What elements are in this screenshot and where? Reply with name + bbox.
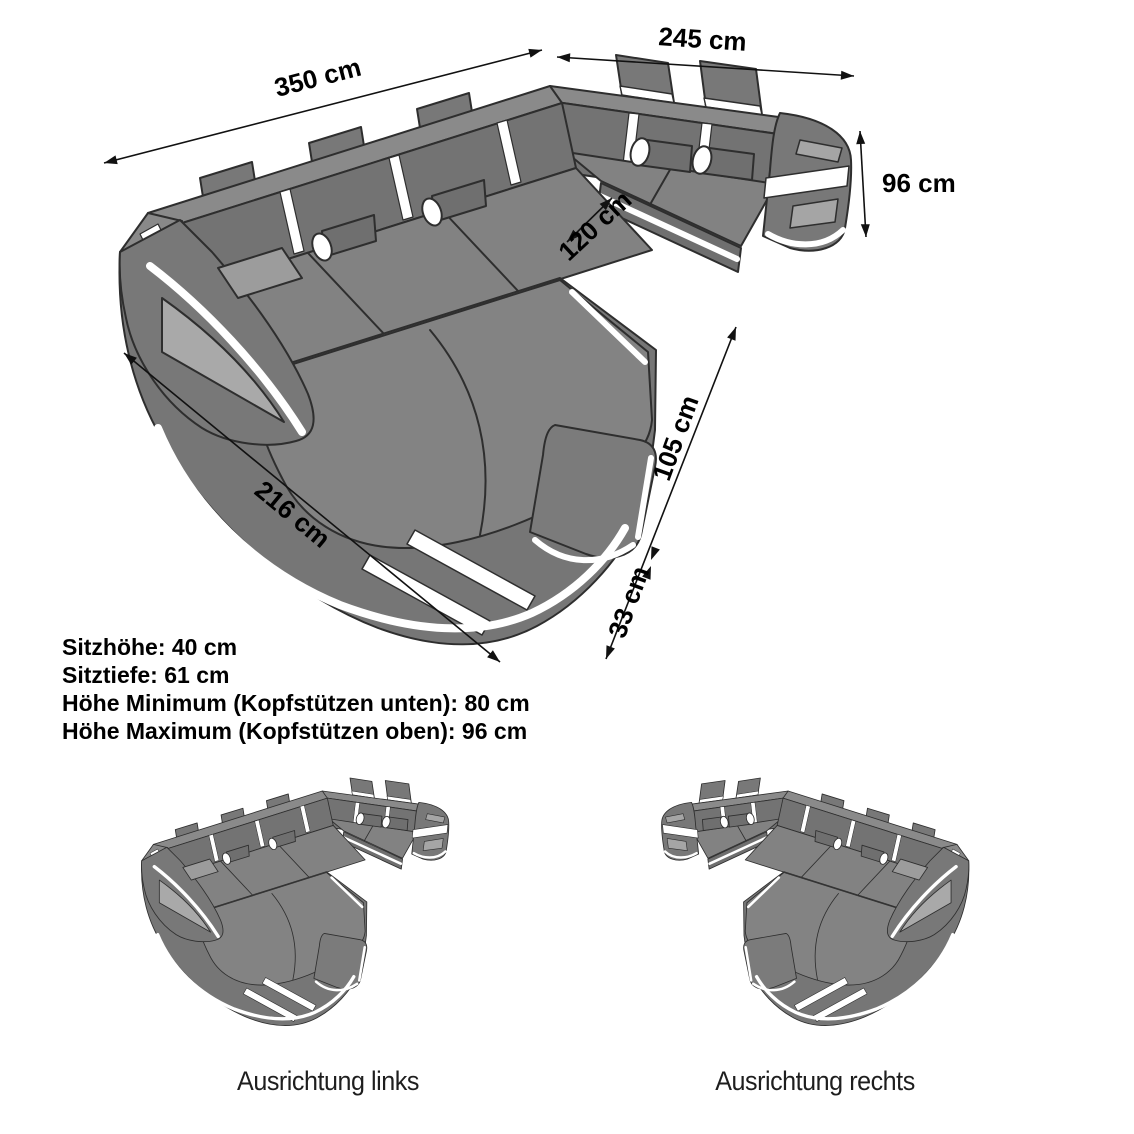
spec-seat-depth: Sitztiefe: 61 cm [62, 661, 530, 689]
orientation-label-rechts: Ausrichtung rechts [657, 1066, 973, 1097]
dim-label-height: 96 cm [882, 168, 956, 198]
diagram-canvas: 350 cm 245 cm 96 cm 120 cm 105 cm [0, 0, 1134, 1134]
spec-height-max: Höhe Maximum (Kopfstützen oben): 96 cm [62, 717, 530, 745]
sofa-dimension-diagram: 350 cm 245 cm 96 cm 120 cm 105 cm [0, 0, 1134, 1134]
sofa-thumbnail-left [141, 778, 448, 1025]
spec-height-min: Höhe Minimum (Kopfstützen unten): 80 cm [62, 689, 530, 717]
dim-label-right-width: 245 cm [658, 21, 748, 57]
dim-label-back-width: 350 cm [271, 52, 364, 103]
spec-seat-height: Sitzhöhe: 40 cm [62, 633, 530, 661]
dim-label-front-edge: 33 cm [602, 562, 655, 642]
orientation-label-links: Ausrichtung links [170, 1066, 486, 1097]
dim-height: 96 cm [856, 131, 956, 237]
sofa-illustration [119, 55, 851, 644]
sofa-right-arm [763, 113, 851, 251]
spec-text-block: Sitzhöhe: 40 cm Sitztiefe: 61 cm Höhe Mi… [62, 633, 530, 745]
sofa-thumbnail-right [662, 778, 969, 1025]
